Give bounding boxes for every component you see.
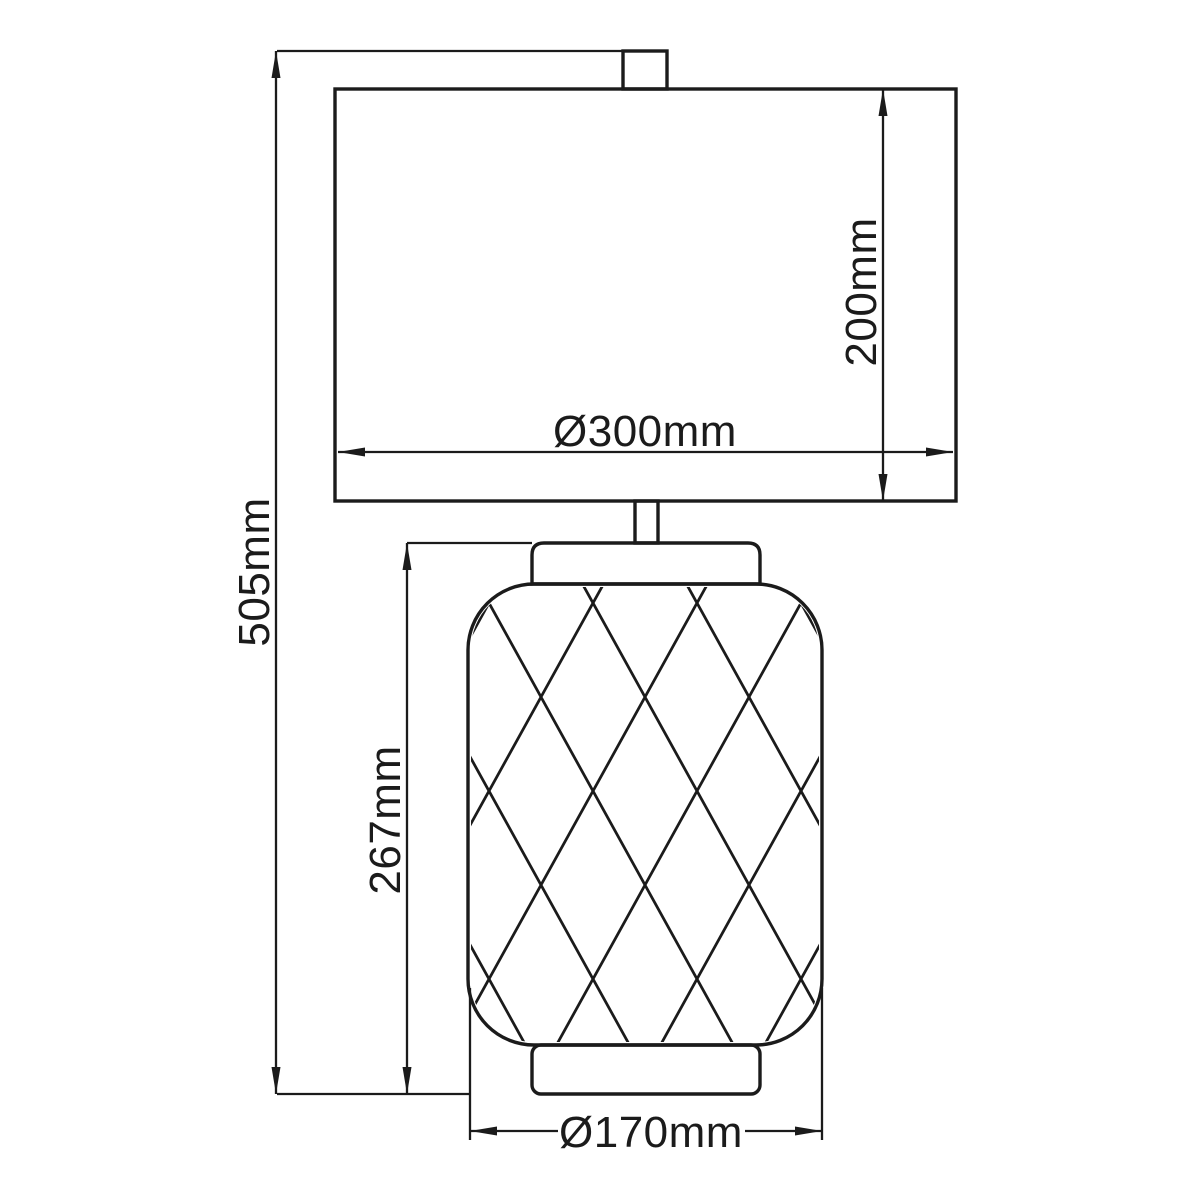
arrowhead-down — [879, 474, 888, 501]
arrowhead-right — [795, 1127, 822, 1136]
arrowhead-left — [470, 1127, 497, 1136]
base-outline — [532, 1045, 760, 1094]
arrowhead-left — [338, 448, 365, 457]
dimension-label-body-diameter: Ø170mm — [559, 1108, 743, 1157]
stem-outline — [635, 501, 658, 543]
arrowhead-up — [272, 51, 281, 78]
dimension-label-shade-height: 200mm — [837, 217, 886, 366]
dimension-label-total-height: 505mm — [230, 497, 279, 646]
arrowhead-up — [403, 543, 412, 570]
arrowhead-down — [272, 1067, 281, 1094]
dimension-label-body-height: 267mm — [361, 745, 410, 894]
arrowhead-up — [879, 89, 888, 116]
finial-outline — [623, 51, 667, 89]
arrowhead-right — [926, 448, 953, 457]
arrowhead-down — [403, 1067, 412, 1094]
body-lattice-pattern — [468, 584, 822, 1045]
neck-outline — [532, 543, 760, 584]
lamp-dimension-diagram: 505mm 200mm Ø300mm 267mm Ø170mm — [0, 0, 1200, 1200]
dimension-label-shade-diameter: Ø300mm — [553, 407, 737, 456]
diagram-canvas: 505mm 200mm Ø300mm 267mm Ø170mm — [0, 0, 1200, 1200]
